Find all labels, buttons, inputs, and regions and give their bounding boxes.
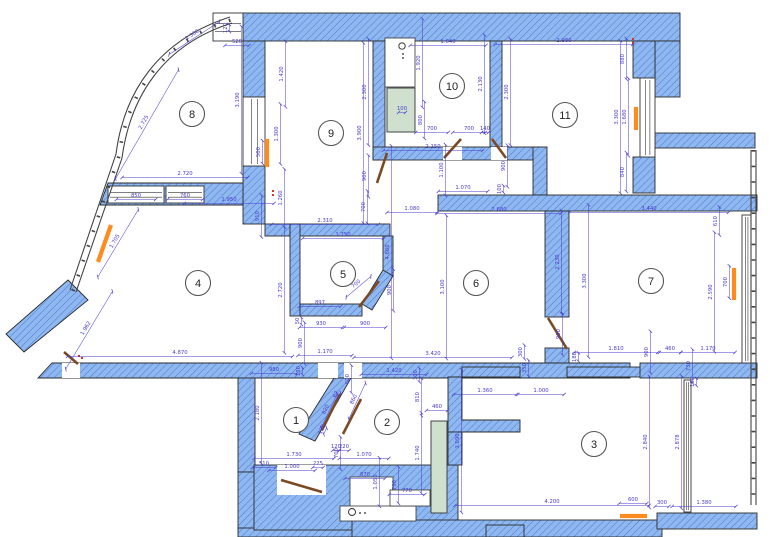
dimension-label: 1.680 (622, 109, 628, 125)
wall-segment (533, 147, 547, 195)
vent-dot-icon (402, 57, 404, 59)
dimension-label: 2.680 (491, 207, 507, 213)
wall-segment (300, 304, 362, 316)
room-label: 1 (284, 408, 309, 433)
dimension-label: 1.920 (416, 55, 422, 71)
dimension-label: 3.090 (455, 433, 461, 449)
red-marker (78, 355, 80, 357)
shaft (431, 421, 447, 513)
window (640, 78, 655, 157)
room-label: 4 (186, 271, 211, 296)
room-number: 4 (195, 278, 201, 290)
dimension-label: 760 (180, 193, 191, 199)
dimension-label: 700 (361, 201, 367, 212)
wall-segment (655, 41, 680, 97)
dimension-label: 700 (723, 276, 729, 287)
dimension-label: 1.810 (608, 346, 624, 352)
dimension-label: 140 (480, 126, 491, 132)
dimension-label: 2.300 (504, 84, 510, 100)
wall-segment (243, 41, 265, 97)
dimension-label: 2.590 (708, 284, 714, 300)
vent-dot-icon (359, 512, 361, 514)
dimension-label: 300 (518, 346, 524, 357)
room-label: 8 (180, 102, 205, 127)
wall-opening (318, 363, 338, 378)
red-marker (632, 38, 634, 40)
dimension-label: 120 (223, 22, 229, 33)
room-number: 8 (189, 109, 195, 121)
dimension-label: 1.300 (274, 126, 280, 142)
dimension-label: 1.730 (286, 452, 302, 458)
wall-segment (655, 133, 755, 148)
dimension-label: 1.170 (700, 346, 716, 352)
dimension-label: 3.300 (614, 109, 620, 125)
wall-segment (243, 13, 680, 41)
floor-plan-page: 1.3001205203.1902.7252.7208507601.9501.2… (0, 0, 770, 537)
room-label: 2 (375, 410, 400, 435)
dimension-label: 2.720 (177, 171, 193, 177)
wall-segment (633, 157, 655, 193)
dimension-label: 520 (232, 39, 243, 45)
dimension-label: 3.190 (235, 92, 241, 108)
dimension-label: 500 (256, 146, 262, 157)
dimension-label: 980 (269, 367, 280, 373)
vent-dot-icon (402, 53, 404, 55)
vent-dot-icon (364, 512, 366, 514)
dimension-label: 4.200 (544, 499, 560, 505)
dimension-label: 180 (572, 351, 578, 362)
dimension-label: 160 (690, 376, 696, 387)
room-label: 6 (464, 271, 489, 296)
dimension-label: 1.360 (477, 388, 493, 394)
dimension-label: 4.870 (172, 350, 188, 356)
dimension-label: 2.840 (643, 434, 649, 450)
room-label: 3 (582, 432, 607, 457)
dimension-label: 3.440 (641, 206, 657, 212)
dimension-label: 460 (432, 404, 443, 410)
dimension-label: 1.000 (284, 464, 300, 470)
dimension-label: 1.080 (404, 206, 420, 212)
dimension-label: 1.170 (317, 349, 333, 355)
dimension-label: 3.300 (582, 273, 588, 289)
dimension-label: 4.600 (385, 244, 391, 260)
room-number: 1 (293, 415, 299, 427)
dimension-label: 1.950 (221, 197, 237, 203)
room-number: 9 (328, 128, 334, 140)
room-number: 7 (648, 276, 654, 288)
dimension-label: 1.740 (415, 445, 421, 461)
dimension-label: 1.260 (278, 190, 284, 206)
room-label: 10 (440, 74, 465, 99)
dimension-label: 730 (686, 360, 692, 371)
dimension-label: 2.150 (425, 144, 441, 150)
dimension-label: 300 (657, 500, 668, 506)
window (742, 215, 751, 363)
dimension-label: 1.000 (533, 388, 549, 394)
wall-segment (290, 224, 300, 316)
dimension-label: 810 (415, 391, 421, 402)
room-number: 5 (340, 269, 346, 281)
dimension-label: 930 (316, 321, 327, 327)
red-marker (81, 357, 83, 359)
dimension-label: 3.900 (357, 125, 363, 141)
dimension-label: 900 (298, 337, 304, 348)
wall-segment (438, 195, 757, 211)
dimension-label: 225 (313, 461, 323, 467)
wall-segment (238, 378, 255, 472)
dimension-label: 2.230 (555, 254, 561, 270)
dimension-label: 900 (556, 328, 562, 339)
wall-segment (633, 41, 655, 78)
dimension-label: 910 (255, 210, 261, 221)
dimension-label: 1.640 (440, 39, 456, 45)
dimension-label: 897 (315, 300, 325, 306)
dimension-label: 850 (131, 193, 142, 199)
dimension-label: 100 (397, 106, 408, 112)
dimension-label: 900 (387, 284, 393, 295)
dimension-label: 700 (464, 126, 475, 132)
dimension-label: 3.420 (425, 351, 441, 357)
red-marker (272, 194, 274, 196)
wall-segment (545, 348, 569, 363)
room-label: 7 (639, 269, 664, 294)
floor-plan-drawing: 1.3001205203.1902.7252.7208507601.9501.2… (0, 0, 770, 537)
dimension-label: 880 (620, 53, 626, 64)
dimension-label: 790 (392, 479, 398, 490)
wall-segment (640, 363, 757, 378)
dimension-label: 900 (360, 321, 371, 327)
dimension-label: 1.420 (279, 66, 285, 82)
dimension-label: 130 (296, 365, 302, 376)
dimension-label: 800 (418, 114, 424, 125)
dimension-label: 2.980 (556, 38, 572, 44)
dimension-label: 870 (360, 472, 371, 478)
room-number: 2 (384, 417, 390, 429)
red-marker (272, 190, 274, 192)
dimension-label: 900 (362, 170, 368, 181)
wall-opening (62, 363, 80, 378)
dimension-label: 2.720 (278, 282, 284, 298)
wall-segment (462, 367, 520, 377)
room-label: 9 (319, 121, 344, 146)
dimension-label: 1.750 (335, 232, 351, 238)
dimension-label: 1.100 (439, 162, 445, 178)
dimension-label: 3.100 (440, 279, 446, 295)
dimension-label: 1.070 (356, 452, 372, 458)
dimension-label: 2.300 (362, 84, 368, 100)
room-label: 11 (553, 103, 578, 128)
wall-segment (657, 513, 757, 529)
wall-segment (490, 41, 502, 147)
dimension-label: 100 (497, 183, 503, 194)
dimension-label: 350 (522, 362, 528, 373)
dimension-label: 50 (295, 317, 301, 324)
dimension-label: 2.180 (255, 405, 261, 421)
room-number: 6 (473, 278, 479, 290)
dimension-label: 1.380 (696, 500, 712, 506)
dimension-label: 460 (665, 346, 676, 352)
dimension-label: 600 (345, 373, 351, 384)
dimension-label: 2.878 (675, 434, 681, 450)
dimension-label: 900 (501, 160, 507, 171)
dimension-label: 1.070 (455, 185, 471, 191)
dimension-label: 700 (427, 126, 438, 132)
room-number: 11 (559, 110, 570, 122)
dimension-label: 2.130 (478, 76, 484, 92)
dimension-label: 300 (413, 369, 419, 380)
dimension-label: 2.310 (317, 218, 333, 224)
room-number: 3 (591, 439, 597, 451)
dimension-label: 900 (644, 346, 650, 357)
dimension-label: 1.050 (373, 474, 379, 490)
dimension-label: 840 (620, 166, 626, 177)
wall-segment (373, 41, 385, 160)
wall-segment (486, 525, 524, 537)
dimension-label: 120 (331, 444, 342, 450)
dimension-label: 610 (713, 215, 719, 226)
dimension-label: 1.420 (386, 368, 402, 374)
dimension-label: 600 (628, 497, 639, 503)
room-number: 10 (446, 81, 458, 93)
room-label: 5 (331, 262, 356, 287)
dimension-label: 770 (402, 488, 413, 494)
wall-segment (265, 224, 390, 236)
window (684, 380, 691, 512)
dimension-label: 510 (259, 461, 270, 467)
